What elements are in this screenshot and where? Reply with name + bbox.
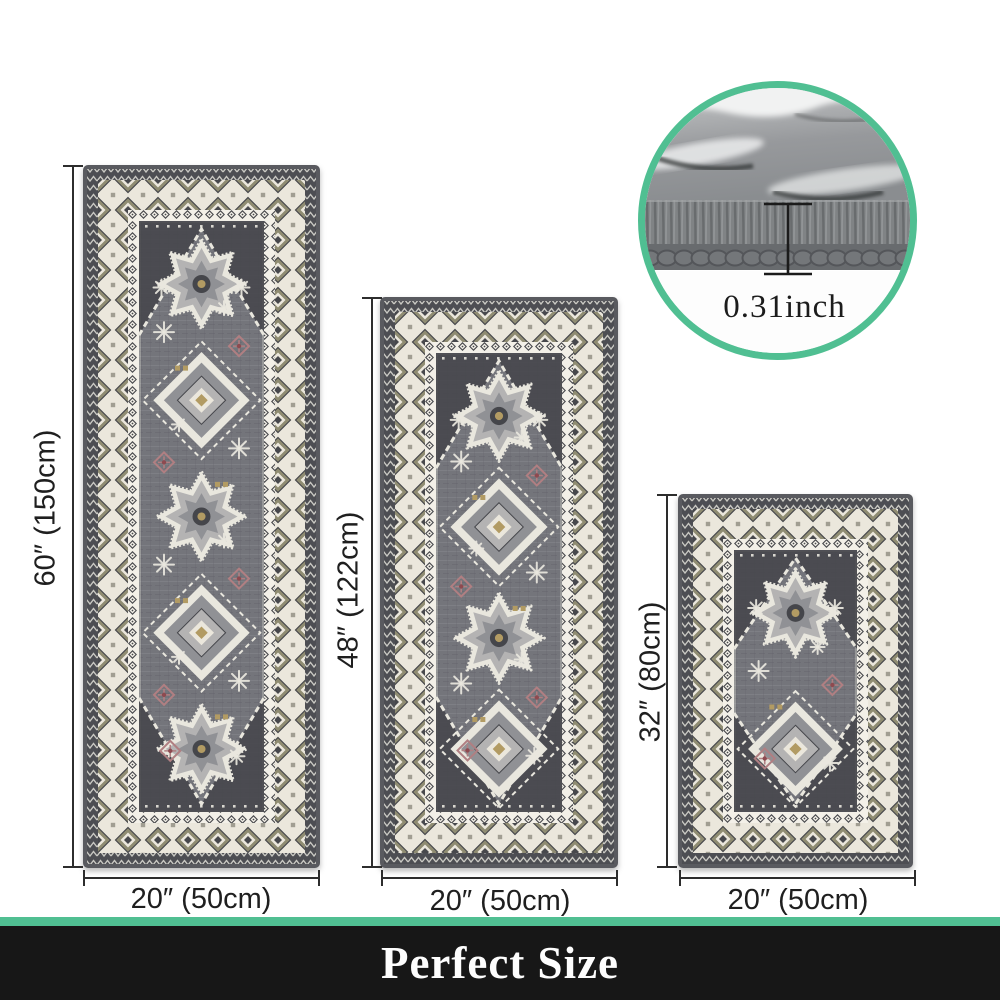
height-label-48: 48″ (122cm) (333, 512, 366, 669)
banner-title: Perfect Size (381, 937, 619, 989)
width-label-48: 20″ (50cm) (430, 885, 571, 918)
width-label-32: 20″ (50cm) (728, 884, 869, 917)
rug-32-inch (678, 494, 913, 868)
accent-stripe (0, 917, 1000, 926)
thickness-value: 0.31inch (645, 289, 910, 326)
thickness-inset-circle: 0.31inch (638, 81, 917, 360)
width-label-60: 20″ (50cm) (131, 883, 272, 916)
rug-48-inch (380, 297, 618, 868)
banner: Perfect Size (0, 926, 1000, 1000)
height-label-60: 60″ (150cm) (30, 430, 63, 587)
width-measure-line-48 (381, 870, 618, 886)
height-measure-line-60 (63, 165, 83, 868)
rug-60-inch (83, 165, 320, 868)
product-size-infographic: 60″ (150cm) 20″ (50cm) 48″ (122cm) 20″ (… (0, 0, 1000, 1000)
height-label-32: 32″ (80cm) (635, 602, 668, 743)
